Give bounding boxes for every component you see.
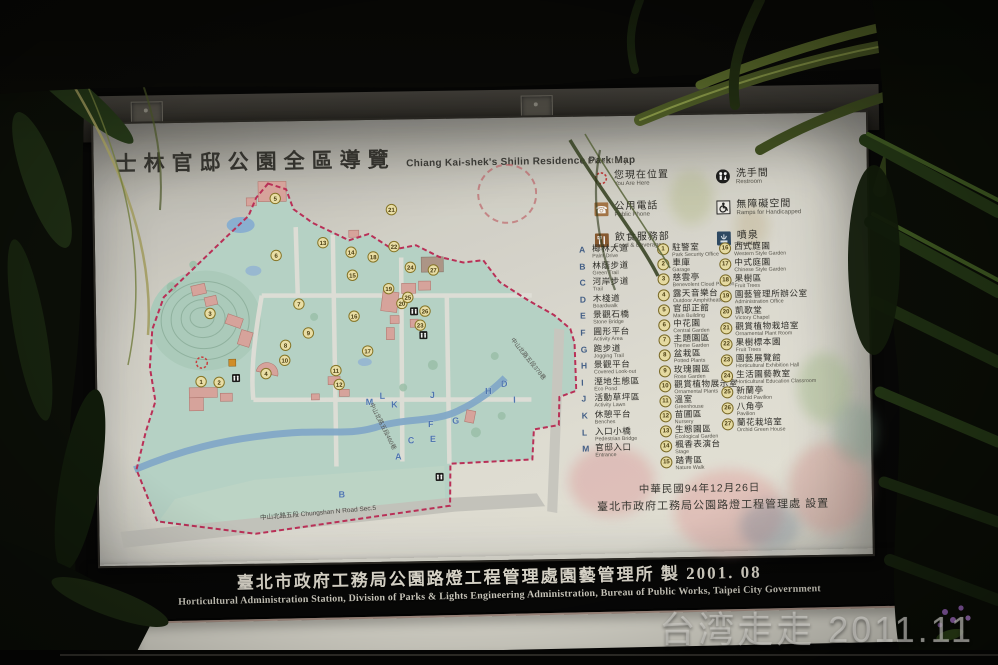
legend-item: 洗手間Restroom	[716, 167, 844, 191]
key-D: D	[580, 294, 591, 304]
item-label-en: Trail	[593, 286, 629, 293]
key-25: 25	[721, 386, 733, 398]
key-18: 18	[719, 274, 731, 286]
key-22: 22	[720, 338, 732, 350]
svg-text:20: 20	[399, 302, 406, 308]
key-I: I	[581, 377, 592, 387]
legend-label-zh: 飲食服務部	[615, 231, 670, 243]
restroom-icon	[716, 169, 730, 183]
legend-label-en: Restroom	[736, 179, 769, 187]
svg-text:12: 12	[336, 383, 343, 389]
item-label-zh: 溫室	[674, 395, 703, 404]
item-label-zh: 車庫	[672, 258, 690, 267]
svg-text:10: 10	[281, 359, 288, 365]
key-11: 11	[659, 395, 671, 407]
map-letter-K: K	[391, 400, 398, 410]
map-letter-J: J	[430, 390, 435, 400]
key-27: 27	[722, 418, 734, 430]
svg-text:21: 21	[388, 208, 395, 214]
key-13: 13	[660, 425, 672, 437]
svg-text:15: 15	[349, 273, 356, 279]
svg-text:☎: ☎	[595, 205, 608, 216]
map-letter-H: H	[485, 386, 492, 396]
svg-text:16: 16	[351, 314, 358, 320]
key-L: L	[582, 427, 593, 437]
you-are-here-icon	[594, 171, 608, 185]
item-label-zh: 露天音樂台	[673, 288, 725, 298]
key-J: J	[581, 394, 592, 404]
svg-text:19: 19	[385, 287, 392, 293]
park-map: 1234567891011121314151617181920212223242…	[100, 163, 580, 552]
entrance-icon	[229, 359, 236, 366]
key-17: 17	[719, 258, 731, 270]
installation-date: 中華民國94年12月26日	[639, 480, 761, 497]
key-1: 1	[657, 243, 669, 255]
item-label-zh: 玫瑰園區	[674, 364, 711, 374]
key-G: G	[581, 344, 592, 354]
svg-text:25: 25	[404, 296, 411, 302]
svg-text:24: 24	[407, 266, 414, 272]
key-list-item: F圓形平台Activity Area	[580, 326, 660, 344]
park-map-board: 士林官邸公園全區導覽 Chiang Kai-shek's Shilin Resi…	[91, 110, 875, 568]
item-label-zh: 休憩平台	[595, 410, 632, 420]
legend-list-letters: A椰林大道Palm DriveB林蔭步道Green TrailC河岸步道Trai…	[579, 243, 662, 460]
key-2: 2	[657, 258, 669, 270]
item-label-en: Stone Bridge	[593, 319, 629, 326]
photo-watermark: 台湾走走 2011.11	[659, 601, 974, 653]
directory-label: Directory	[588, 156, 629, 166]
key-list-item: J活動草坪區Activity Lawn	[581, 393, 661, 411]
item-label-zh: 木棧道	[593, 294, 620, 303]
key-4: 4	[658, 289, 670, 301]
watercolor-rose	[788, 442, 869, 533]
svg-text:18: 18	[370, 255, 377, 261]
key-7: 7	[658, 334, 670, 346]
map-letter-A: A	[395, 451, 402, 461]
item-label-zh: 楓香表演台	[675, 440, 721, 450]
key-21: 21	[720, 322, 732, 334]
item-label-zh: 跑步道	[594, 344, 624, 353]
key-list-item: M官邸入口Entrance	[582, 443, 662, 461]
item-label-zh: 椰林大道	[592, 244, 629, 254]
item-label-zh: 入口小橋	[595, 426, 637, 436]
map-letter-G: G	[452, 416, 459, 426]
legend-label-zh: 噴泉	[737, 230, 761, 241]
item-label-en: Benches	[595, 419, 631, 426]
key-A: A	[579, 245, 590, 255]
item-label-zh: 圓形平台	[593, 327, 630, 337]
key-list-item: 15踏青區Nature Walk	[660, 455, 722, 471]
item-label-en: Palm Drive	[592, 253, 628, 260]
legend-item: ☎公用電話Public Phone	[594, 199, 722, 223]
key-9: 9	[659, 365, 671, 377]
key-list-item: H景觀平台Covered Look-out	[581, 360, 661, 378]
key-list-item: E景觀石橋Stone Bridge	[580, 310, 660, 328]
map-letter-D: D	[501, 379, 508, 389]
key-6: 6	[658, 319, 670, 331]
legend-label-en: Ramps for Handicapped	[736, 209, 801, 217]
key-20: 20	[720, 306, 732, 318]
key-list-item: 3慈雲亭Benevolent Cloud Pavilion	[657, 273, 719, 289]
key-list-item: 8盆栽區Potted Plants	[659, 349, 721, 365]
key-list-item: C河岸步道Trail	[580, 277, 660, 295]
item-label-en: Covered Look-out	[594, 369, 636, 376]
legend-list-numbers-1-15: 1駐警室Park Security Office2車庫Garage3慈雲亭Ben…	[657, 242, 723, 471]
key-23: 23	[721, 354, 733, 366]
item-label-zh: 苗圃區	[675, 410, 702, 419]
restroom-icon	[436, 473, 444, 481]
key-list-item: 14楓香表演台Stage	[660, 440, 722, 456]
item-label-zh: 活動草坪區	[594, 393, 640, 403]
key-E: E	[580, 311, 591, 321]
key-12: 12	[660, 410, 672, 422]
item-label-zh: 果樹區	[734, 274, 761, 283]
key-14: 14	[660, 441, 672, 453]
key-K: K	[582, 410, 593, 420]
map-letter-E: E	[430, 434, 436, 444]
key-15: 15	[660, 456, 672, 468]
svg-text:11: 11	[333, 369, 340, 375]
item-label-en: Orchid Green House	[737, 426, 786, 433]
svg-text:26: 26	[422, 309, 429, 315]
sign-assembly: 士林官邸公園全區導覽 Chiang Kai-shek's Shilin Resi…	[81, 84, 912, 663]
key-list-item: K休憩平台Benches	[582, 409, 662, 427]
key-H: H	[581, 361, 592, 371]
legend-label-en: Public Phone	[614, 211, 658, 219]
key-19: 19	[720, 290, 732, 302]
key-16: 16	[719, 242, 731, 254]
svg-text:27: 27	[430, 268, 437, 274]
ramp-icon	[716, 200, 730, 214]
installed-by-line: 臺北市政府工務局公園路燈工程管理處 設置	[597, 495, 829, 515]
key-10: 10	[659, 380, 671, 392]
item-label-zh: 官邸入口	[595, 443, 632, 453]
key-24: 24	[721, 370, 733, 382]
restroom-icon	[232, 374, 240, 382]
key-26: 26	[721, 402, 733, 414]
legend-label-zh: 您現在位置	[614, 169, 669, 181]
key-list-item: A椰林大道Palm Drive	[579, 243, 659, 261]
legend-list-numbers-16-27: 16西式庭園Western Style Garden17中式庭園Chinese …	[719, 240, 872, 434]
svg-text:23: 23	[417, 323, 424, 329]
restroom-icon	[419, 331, 427, 339]
item-label-zh: 果樹標本園	[735, 338, 781, 348]
restroom-icon	[410, 307, 418, 315]
key-3: 3	[657, 274, 669, 286]
legend-label-zh: 公用電話	[614, 200, 658, 212]
map-letter-L: L	[380, 391, 386, 401]
map-letter-F: F	[428, 419, 434, 429]
key-5: 5	[658, 304, 670, 316]
key-list-item: 4露天音樂台Outdoor Amphitheater	[658, 288, 720, 304]
park-sign-photo: 士林官邸公園全區導覽 Chiang Kai-shek's Shilin Resi…	[0, 0, 998, 665]
legend-label-zh: 洗手間	[736, 168, 769, 180]
legend-item: 無障礙空間Ramps for Handicapped	[716, 198, 844, 222]
map-letter-C: C	[408, 435, 415, 445]
map-letter-B: B	[339, 489, 346, 499]
key-B: B	[579, 261, 590, 271]
item-label-zh: 八角亭	[736, 402, 763, 411]
key-F: F	[580, 327, 591, 337]
key-M: M	[582, 444, 593, 454]
item-label-en: Activity Lawn	[594, 402, 640, 409]
item-label-en: Activity Area	[593, 336, 629, 343]
key-list-item: 10觀賞植物展示室Ornamental Plants	[659, 379, 721, 395]
svg-text:22: 22	[391, 245, 398, 251]
item-label-zh: 林蔭步道	[592, 260, 629, 270]
item-label-en: Nature Walk	[675, 464, 704, 470]
svg-text:17: 17	[364, 349, 371, 355]
item-label-zh: 溼地生態區	[594, 376, 640, 386]
svg-text:14: 14	[348, 250, 355, 256]
svg-text:13: 13	[320, 241, 327, 247]
item-label-zh: 河岸步道	[593, 277, 630, 287]
public-phone-icon: ☎	[594, 202, 608, 216]
item-label-zh: 官邸正館	[673, 303, 710, 313]
key-C: C	[580, 278, 591, 288]
key-list-item: 27蘭花栽培室Orchid Green House	[722, 416, 872, 434]
legend-item: 您現在位置You Are Here	[594, 168, 722, 192]
key-8: 8	[659, 350, 671, 362]
legend-label-en: You Are Here	[614, 180, 669, 188]
item-label-en: Entrance	[595, 452, 631, 459]
map-letter-I: I	[513, 395, 516, 405]
item-label-zh: 踏青區	[675, 455, 704, 464]
